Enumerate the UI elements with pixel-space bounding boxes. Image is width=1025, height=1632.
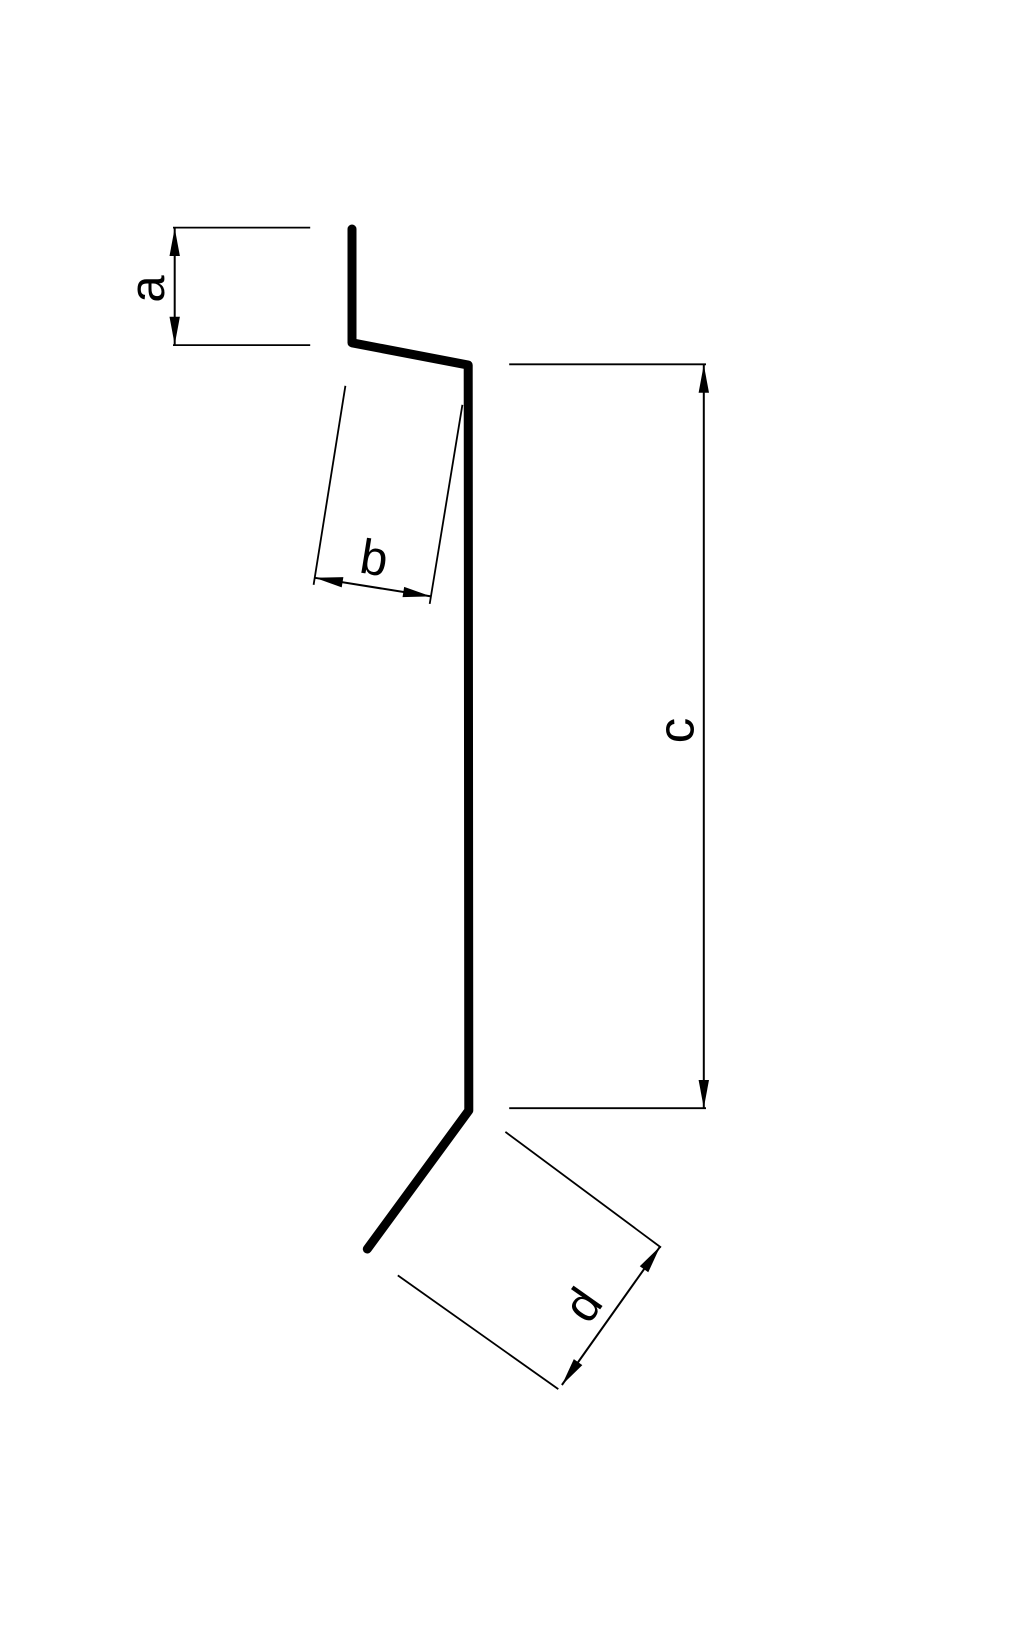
- svg-text:a: a: [121, 275, 175, 303]
- svg-text:b: b: [356, 530, 391, 588]
- svg-text:c: c: [648, 718, 705, 744]
